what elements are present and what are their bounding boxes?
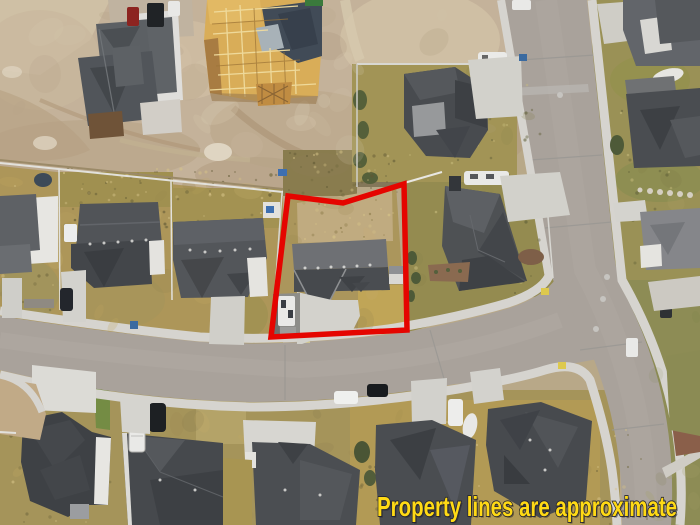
svg-text:Property lines are approximate: Property lines are approximate: [377, 491, 677, 522]
